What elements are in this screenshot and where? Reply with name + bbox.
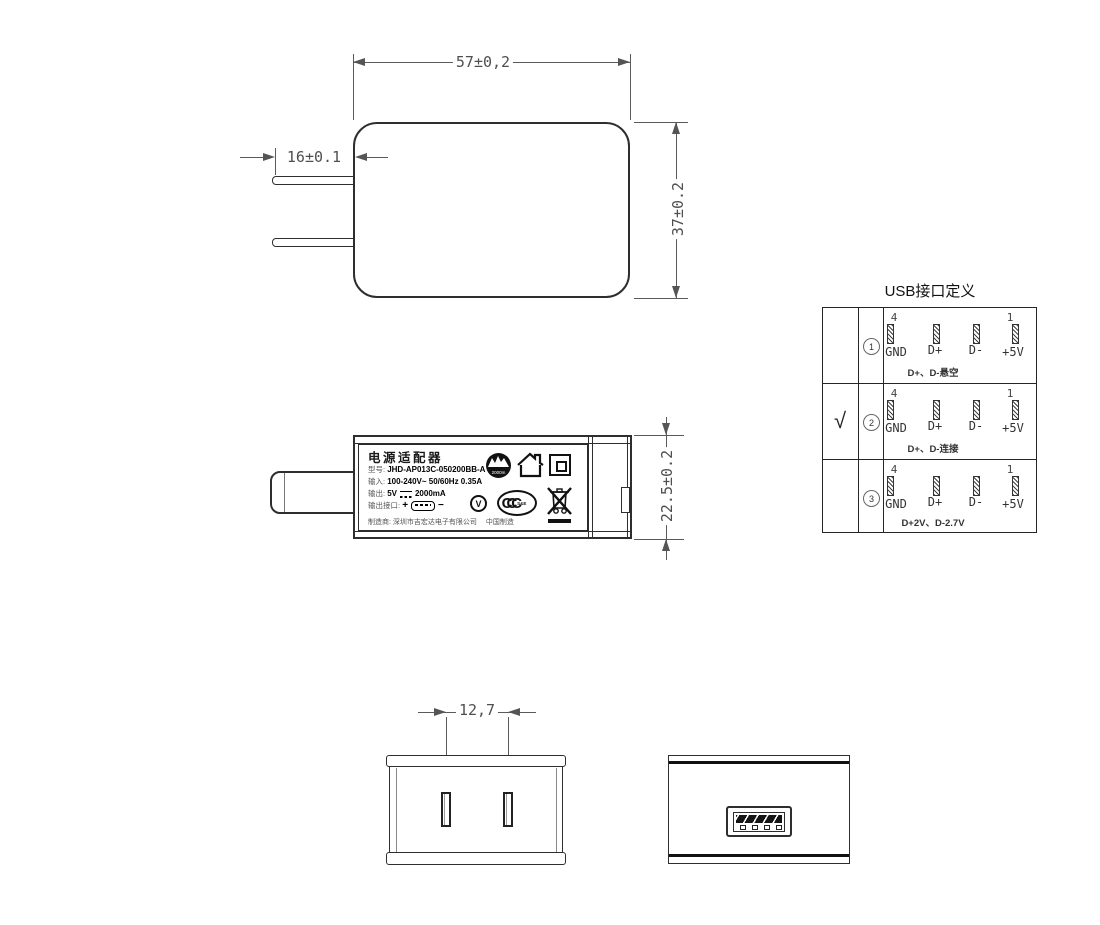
row-number-badge: 1 xyxy=(863,338,880,355)
pin-label-dplus: D+ xyxy=(928,495,942,509)
ext-line xyxy=(634,298,688,299)
pin-glyph xyxy=(973,400,980,420)
pin-label-5v: +5V xyxy=(1002,497,1024,511)
row-note: D+2V、D-2.7V xyxy=(901,515,964,529)
port-plus-sign: + xyxy=(402,500,408,511)
dim-line xyxy=(367,157,388,158)
pin-glyph xyxy=(973,476,980,496)
ext-line xyxy=(630,54,631,120)
prong-slot-left xyxy=(441,792,451,827)
pin-label-5v: +5V xyxy=(1002,421,1024,435)
body-seam-line xyxy=(592,436,593,538)
model-label: 型号: xyxy=(368,465,385,474)
ext-line xyxy=(275,148,276,175)
pin-label-dminus: D- xyxy=(969,419,983,433)
label-model-row: 型号: JHD-AP013C-050200BB-A xyxy=(368,464,485,475)
input-label: 输入: xyxy=(368,477,385,486)
plug-face-body xyxy=(389,766,563,854)
pin-number-1: 1 xyxy=(1007,387,1014,400)
pin-glyph xyxy=(887,324,894,344)
plug-prong-side xyxy=(270,471,356,514)
pin-glyph xyxy=(1012,400,1019,420)
plug-prong-lower xyxy=(272,238,355,247)
efficiency-level-icon: V xyxy=(470,495,487,512)
row-note: D+、D-连接 xyxy=(908,441,959,455)
body-band-line xyxy=(669,761,849,764)
arrowhead-icon xyxy=(263,153,275,161)
arrowhead-icon xyxy=(434,708,446,716)
pin-label-dplus: D+ xyxy=(928,343,942,357)
pin-label-dminus: D- xyxy=(969,343,983,357)
prong-slot-right xyxy=(503,792,513,827)
label-maker-row: 制造商: 深圳市吉宏达电子有限公司 中国制造 xyxy=(368,517,514,527)
body-wall-line xyxy=(396,768,397,852)
body-wall-line xyxy=(556,768,557,852)
label-port-row: 输出接口: +− xyxy=(368,500,444,511)
selected-check: √ xyxy=(834,408,846,434)
port-label: 输出接口: xyxy=(368,501,400,510)
pin-label-5v: +5V xyxy=(1002,345,1024,359)
weee-bar xyxy=(548,519,571,523)
pin-number-1: 1 xyxy=(1007,463,1014,476)
altitude-2000m-icon: 2000m xyxy=(486,453,511,478)
port-minus-sign: − xyxy=(438,500,444,511)
pin-label-gnd: GND xyxy=(885,345,907,359)
arrowhead-icon xyxy=(662,423,670,435)
ccc-sub-text: S&E xyxy=(517,501,526,506)
arrowhead-icon xyxy=(355,153,367,161)
weee-bin-icon xyxy=(546,486,573,522)
usb-table-grid: 1 4 1 GND D+ D- +5V D+、D-悬空 √ 2 4 1 GND … xyxy=(822,307,1037,533)
usb-contact-tab xyxy=(752,825,758,830)
output-label: 输出: xyxy=(368,489,385,498)
pin-label-dplus: D+ xyxy=(928,419,942,433)
dim-pin-spacing-text: 12,7 xyxy=(456,701,498,719)
made-in-text: 中国制造 xyxy=(486,519,514,526)
label-output-row: 输出: 5V2000mA xyxy=(368,488,446,499)
arrowhead-icon xyxy=(508,708,520,716)
pin-number-4: 4 xyxy=(891,463,898,476)
pin-label-dminus: D- xyxy=(969,495,983,509)
maker-value: 深圳市吉宏达电子有限公司 xyxy=(393,519,477,526)
row-number: 1 xyxy=(869,342,874,352)
body-cap-line xyxy=(354,531,631,532)
arrowhead-icon xyxy=(353,58,365,66)
table-column-line xyxy=(883,308,884,532)
pin-label-gnd: GND xyxy=(885,421,907,435)
row-number-badge: 2 xyxy=(863,414,880,431)
usb-contact-tab xyxy=(776,825,782,830)
adapter-body-front xyxy=(353,122,630,298)
dim-line xyxy=(240,157,264,158)
dim-thickness-text: 22.5±0.2 xyxy=(658,447,676,525)
class-ii-inner-square xyxy=(556,461,567,472)
pin-number-4: 4 xyxy=(891,387,898,400)
body-band-line xyxy=(669,854,849,857)
pin-glyph xyxy=(1012,476,1019,496)
row-number: 2 xyxy=(869,418,874,428)
label-input-row: 输入: 100-240V~ 50/60Hz 0.35A xyxy=(368,476,482,487)
usb-port-side-notch xyxy=(621,487,630,513)
usb-tongue xyxy=(736,815,782,823)
pin-number-1: 1 xyxy=(1007,311,1014,324)
input-value: 100-240V~ 50/60Hz 0.35A xyxy=(387,477,482,486)
plug-face-bottom-cap xyxy=(386,852,566,865)
row-number-badge: 3 xyxy=(863,490,880,507)
rating-label: 电源适配器 型号: JHD-AP013C-050200BB-A 输入: 100-… xyxy=(358,444,588,531)
arrowhead-icon xyxy=(618,58,630,66)
pin-number-4: 4 xyxy=(891,311,898,324)
technical-drawing-page: 57±0,2 16±0.1 37±0.2 xyxy=(0,0,1100,925)
usb-connector-icon xyxy=(411,501,435,511)
pin-glyph xyxy=(887,400,894,420)
row-number: 3 xyxy=(869,494,874,504)
dim-prong-text: 16±0.1 xyxy=(284,148,344,166)
body-seam-line xyxy=(588,436,589,538)
indoor-use-icon xyxy=(515,451,546,483)
efficiency-letter: V xyxy=(475,499,481,509)
ext-line xyxy=(634,539,684,540)
plug-prong-upper xyxy=(272,176,355,185)
pin-glyph xyxy=(887,476,894,496)
pin-label-gnd: GND xyxy=(885,497,907,511)
pin-glyph xyxy=(933,400,940,420)
arrowhead-icon xyxy=(672,122,680,134)
table-row-line xyxy=(823,459,1036,460)
altitude-text: 2000m xyxy=(486,470,511,475)
table-row-line xyxy=(823,383,1036,384)
dim-height-text: 37±0.2 xyxy=(669,179,687,239)
maker-label: 制造商: xyxy=(368,519,391,526)
class-ii-icon xyxy=(549,454,571,476)
ccc-mark-icon: CCC S&E xyxy=(497,490,537,516)
output-current: 2000mA xyxy=(415,489,446,498)
dim-width-text: 57±0,2 xyxy=(453,53,513,71)
usb-contact-tab xyxy=(764,825,770,830)
prong-cap-line xyxy=(284,473,285,512)
output-voltage: 5V xyxy=(387,489,397,498)
dc-symbol-icon xyxy=(400,491,412,498)
ext-line xyxy=(634,435,684,436)
model-value: JHD-AP013C-050200BB-A xyxy=(387,465,485,474)
pin-glyph xyxy=(1012,324,1019,344)
table-column-line xyxy=(858,308,859,532)
arrowhead-icon xyxy=(672,286,680,298)
pin-glyph xyxy=(973,324,980,344)
ccc-letters: CCC xyxy=(502,495,517,512)
usb-contact-tab xyxy=(740,825,746,830)
usb-table-title: USB接口定义 xyxy=(885,280,976,301)
arrowhead-icon xyxy=(662,539,670,551)
pin-glyph xyxy=(933,324,940,344)
row-note: D+、D-悬空 xyxy=(908,365,959,379)
pin-glyph xyxy=(933,476,940,496)
